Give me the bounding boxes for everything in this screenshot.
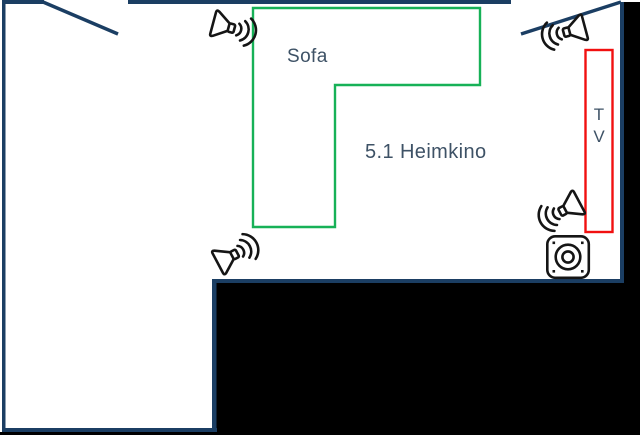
sofa-label: Sofa xyxy=(287,46,328,68)
floorplan-canvas: Sofa 5.1 Heimkino T V xyxy=(0,0,640,435)
wall-bottom-main xyxy=(212,279,624,283)
outside-area-bottom-right xyxy=(216,282,640,435)
door-swing-top-left xyxy=(43,2,118,34)
subwoofer-icon xyxy=(547,236,589,277)
sofa-outline xyxy=(253,8,480,227)
speaker-bottom-right-icon xyxy=(534,189,586,234)
tv-label: T V xyxy=(585,104,613,148)
speaker-bottom-left-icon xyxy=(211,230,263,275)
tv-label-line2: V xyxy=(593,126,604,148)
wall-top-middle-segment xyxy=(128,0,511,4)
wall-left xyxy=(2,0,6,431)
speaker-top-left-icon xyxy=(210,9,260,47)
wall-corridor-bottom xyxy=(2,428,217,432)
room-caption: 5.1 Heimkino xyxy=(365,141,487,164)
wall-top-left-segment xyxy=(2,0,44,4)
wall-corridor-right xyxy=(212,279,217,431)
tv-label-line1: T xyxy=(594,104,604,126)
wall-right xyxy=(620,2,624,283)
